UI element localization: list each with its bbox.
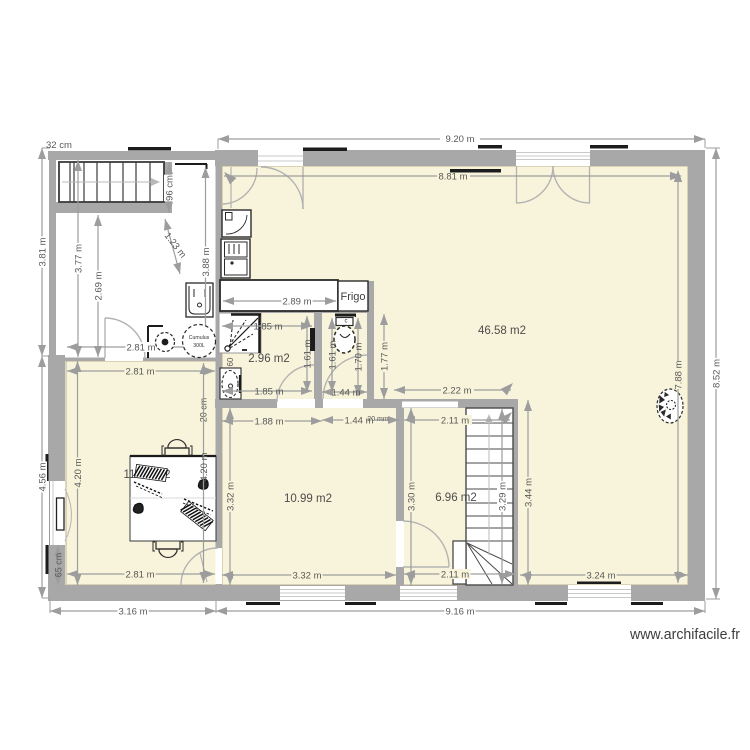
svg-text:3.24 m: 3.24 m	[586, 570, 615, 581]
svg-text:9.20 m: 9.20 m	[445, 134, 474, 145]
svg-text:c: c	[345, 319, 348, 325]
svg-text:3.77 m: 3.77 m	[73, 244, 84, 273]
svg-text:www.archifacile.fr: www.archifacile.fr	[629, 626, 740, 643]
svg-text:3.32 m: 3.32 m	[225, 482, 236, 511]
svg-text:8.81 m: 8.81 m	[438, 171, 467, 182]
svg-text:2.11 m: 2.11 m	[441, 415, 469, 426]
svg-text:60: 60	[226, 357, 235, 366]
svg-text:1.61 m: 1.61 m	[327, 340, 338, 369]
svg-text:3.32 m: 3.32 m	[292, 570, 321, 581]
svg-text:9.16 m: 9.16 m	[445, 606, 474, 617]
svg-text:6.96 m2: 6.96 m2	[435, 492, 477, 504]
svg-text:1.61 m: 1.61 m	[302, 339, 313, 368]
svg-text:2.96 m2: 2.96 m2	[248, 353, 290, 365]
svg-text:2.11 m: 2.11 m	[441, 569, 469, 580]
svg-text:32 cm: 32 cm	[46, 140, 72, 151]
svg-text:2.81 m: 2.81 m	[126, 342, 155, 353]
svg-text:1.70 m: 1.70 m	[353, 342, 364, 371]
svg-text:1.44 m: 1.44 m	[331, 387, 360, 398]
svg-text:3.44 m: 3.44 m	[523, 478, 534, 507]
svg-text:1.77 m: 1.77 m	[379, 342, 390, 371]
svg-text:3.30 m: 3.30 m	[406, 482, 417, 511]
svg-text:2.69 m: 2.69 m	[93, 271, 104, 300]
svg-text:2.89 m: 2.89 m	[282, 296, 311, 307]
svg-text:3.88 m: 3.88 m	[201, 247, 212, 276]
svg-text:46.58 m2: 46.58 m2	[478, 325, 526, 337]
svg-text:65 cm: 65 cm	[53, 553, 63, 578]
svg-text:1.88 m: 1.88 m	[254, 416, 283, 427]
svg-text:10.99 m2: 10.99 m2	[284, 493, 332, 505]
svg-text:4.56 m: 4.56 m	[37, 462, 48, 491]
svg-text:2.81 m: 2.81 m	[125, 366, 154, 377]
svg-text:1.85 m: 1.85 m	[253, 321, 282, 332]
svg-text:3.29 m: 3.29 m	[497, 482, 508, 511]
svg-text:4.20 m: 4.20 m	[199, 452, 210, 481]
svg-text:20 mm: 20 mm	[367, 416, 389, 423]
svg-text:96 cm: 96 cm	[164, 175, 175, 201]
svg-text:Frigo: Frigo	[340, 291, 365, 303]
svg-text:1.85 m: 1.85 m	[254, 386, 283, 397]
svg-text:7.88 m: 7.88 m	[673, 360, 684, 389]
svg-text:3.16 m: 3.16 m	[118, 606, 147, 617]
svg-text:Cumulus: Cumulus	[189, 335, 210, 341]
svg-text:300L: 300L	[193, 343, 205, 349]
svg-text:2.22 m: 2.22 m	[442, 385, 471, 396]
svg-text:8.52 m: 8.52 m	[711, 359, 722, 388]
svg-text:2.81 m: 2.81 m	[125, 569, 154, 580]
svg-text:4.20 m: 4.20 m	[73, 458, 84, 487]
svg-text:3.81 m: 3.81 m	[37, 237, 48, 266]
